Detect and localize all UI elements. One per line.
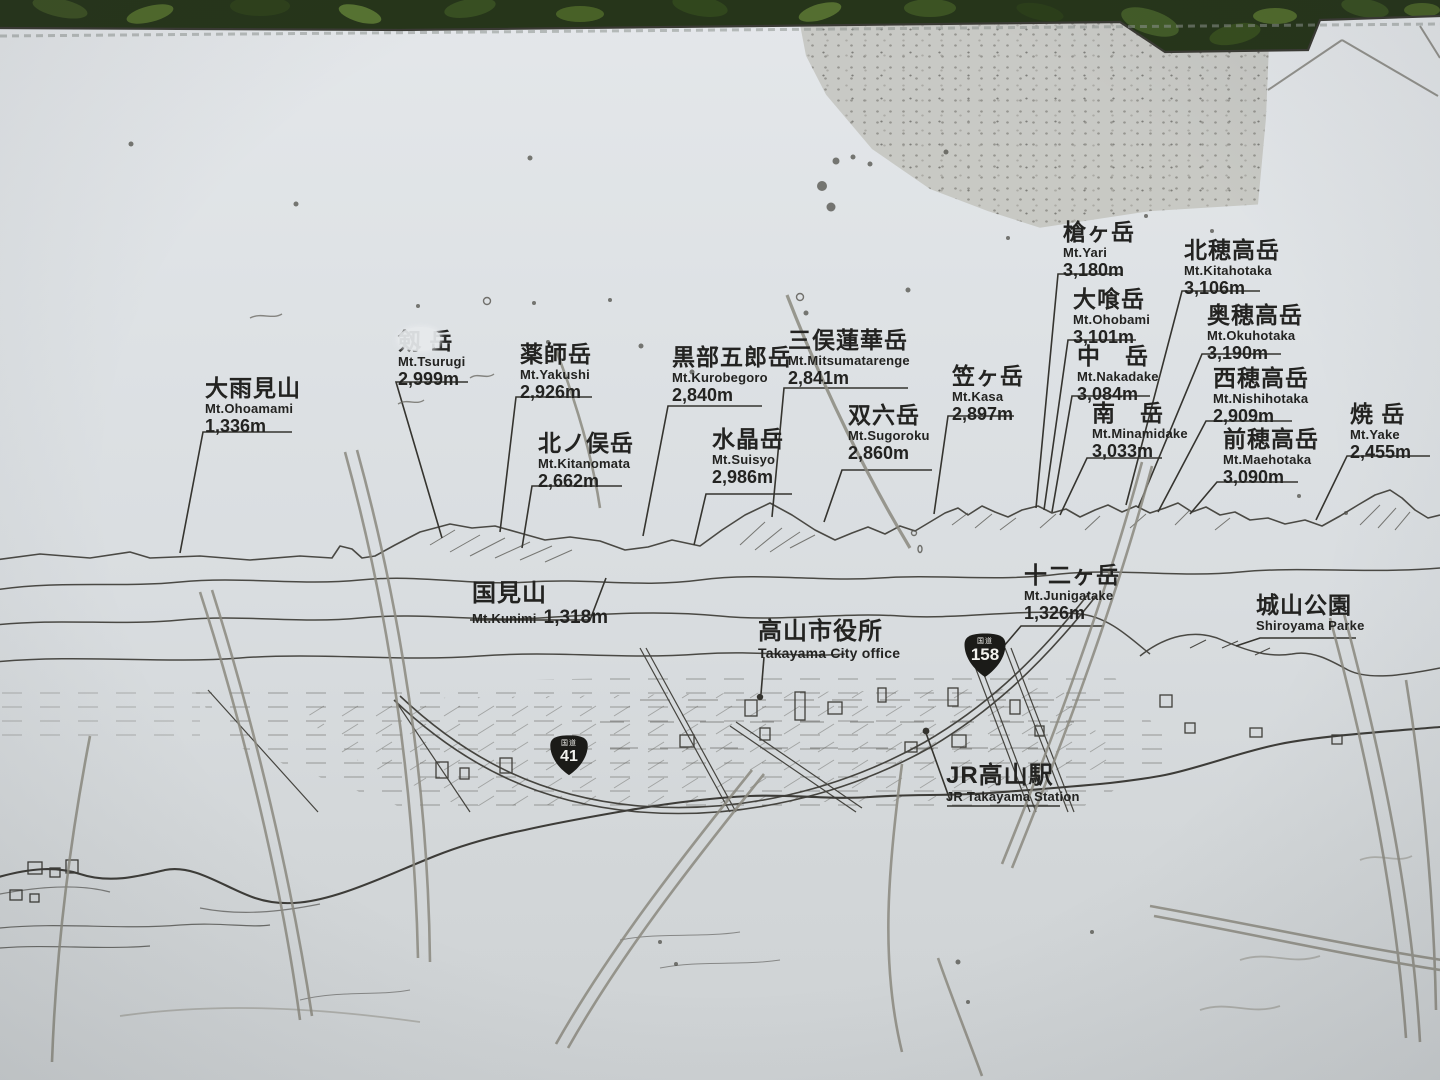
landmark-elevation: 1,326m (1024, 604, 1120, 624)
peak-kanji: 笠ヶ岳 (952, 365, 1024, 389)
peak-kanji: 大雨見山 (205, 377, 301, 401)
peak-kanji: 大喰岳 (1073, 288, 1150, 312)
peak-romaji: Mt.Kasa (952, 390, 1024, 404)
peak-kanji: 北穂高岳 (1184, 239, 1280, 263)
landmark-kanji: 国見山 (472, 582, 608, 607)
landmark-romaji: Mt.Junigatake (1024, 589, 1120, 603)
peak-kanji: 南 岳 (1092, 402, 1188, 426)
peak-kanji: 黒部五郎岳 (672, 346, 792, 370)
route-number: 158 (962, 646, 1008, 664)
peak-kanji: 前穂高岳 (1223, 428, 1319, 452)
peak-romaji: Mt.Minamidake (1092, 427, 1188, 441)
peak-elevation: 2,662m (538, 472, 634, 492)
landmark-kanji: 高山市役所 (758, 620, 900, 645)
peak-romaji: Mt.Yakushi (520, 368, 592, 382)
peak-label-minamidake: 南 岳 Mt.Minamidake 3,033m (1092, 402, 1188, 462)
route-number: 41 (548, 748, 590, 766)
landmark-kanji: JR高山駅 (946, 764, 1080, 789)
route-caption: 国道 (548, 734, 590, 748)
peak-kanji: 薬師岳 (520, 343, 592, 367)
peak-romaji: Mt.Tsurugi (398, 355, 465, 369)
peak-elevation: 2,860m (848, 444, 930, 464)
landmark-label-city-office: 高山市役所 Takayama City office (758, 620, 900, 661)
peak-romaji: Mt.Nakadake (1077, 370, 1159, 384)
peak-kanji: 西穂高岳 (1213, 367, 1309, 391)
alps-skyline (0, 490, 1440, 560)
landmark-romaji: Mt.Kunimi (472, 612, 537, 626)
peak-kanji: 槍ヶ岳 (1063, 221, 1135, 245)
peak-elevation: 3,033m (1092, 442, 1188, 462)
landmark-romaji: JR Takayama Station (946, 790, 1080, 804)
peak-elevation: 2,897m (952, 405, 1024, 425)
peak-label-yake: 焼 岳 Mt.Yake 2,455m (1350, 403, 1411, 463)
peak-romaji: Mt.Ohobami (1073, 313, 1150, 327)
peak-elevation: 3,090m (1223, 468, 1319, 488)
peak-label-yari: 槍ヶ岳 Mt.Yari 3,180m (1063, 221, 1135, 281)
peak-elevation: 2,999m (398, 370, 465, 390)
peak-elevation: 3,180m (1063, 261, 1135, 281)
landmark-label-kunimi: 国見山 Mt.Kunimi 1,318m (472, 582, 608, 629)
panorama-line-art (0, 0, 1440, 1080)
peak-label-mitsumatarenge: 三俣蓮華岳 Mt.Mitsumatarenge 2,841m (788, 329, 910, 389)
peak-label-okuhotaka: 奥穂高岳 Mt.Okuhotaka 3,190m (1207, 304, 1303, 364)
panorama-sign-photo: 大雨見山 Mt.Ohoamami 1,336m 剱 岳 Mt.Tsurugi 2… (0, 0, 1440, 1080)
peak-label-ohoamami: 大雨見山 Mt.Ohoamami 1,336m (205, 377, 301, 437)
peak-kanji: 中 岳 (1077, 345, 1159, 369)
peak-elevation: 2,840m (672, 386, 792, 406)
peak-kanji: 水晶岳 (712, 428, 784, 452)
peak-romaji: Mt.Sugoroku (848, 429, 930, 443)
peak-romaji: Mt.Yake (1350, 428, 1411, 442)
peak-romaji: Mt.Ohoamami (205, 402, 301, 416)
peak-label-kitahotaka: 北穂高岳 Mt.Kitahotaka 3,106m (1184, 239, 1280, 299)
peak-kanji: 焼 岳 (1350, 403, 1411, 427)
landmark-label-jr-station: JR高山駅 JR Takayama Station (946, 764, 1080, 804)
landmark-kanji: 十二ヶ岳 (1024, 564, 1120, 588)
ridge-hatching (430, 505, 1410, 562)
peak-romaji: Mt.Yari (1063, 246, 1135, 260)
peak-romaji: Mt.Maehotaka (1223, 453, 1319, 467)
city-map (0, 592, 1342, 814)
peak-romaji: Mt.Mitsumatarenge (788, 354, 910, 368)
landmark-label-shiroyama-park: 城山公園 Shiroyama Parke (1256, 594, 1365, 633)
peak-label-maehotaka: 前穂高岳 Mt.Maehotaka 3,090m (1223, 428, 1319, 488)
peak-romaji: Mt.Suisyo (712, 453, 784, 467)
middle-ridges (0, 568, 1440, 676)
peak-label-nakadake: 中 岳 Mt.Nakadake 3,084m (1077, 345, 1159, 405)
route-158-shield: 国道 158 (962, 632, 1008, 678)
peak-kanji: 北ノ俣岳 (538, 432, 634, 456)
peak-elevation: 3,106m (1184, 279, 1280, 299)
peak-elevation: 2,926m (520, 383, 592, 403)
peak-label-nishihotaka: 西穂高岳 Mt.Nishihotaka 2,909m (1213, 367, 1309, 427)
peak-label-kurobegoro: 黒部五郎岳 Mt.Kurobegoro 2,840m (672, 346, 792, 406)
paint-chip-blemish (398, 327, 440, 351)
peak-romaji: Mt.Kitahotaka (1184, 264, 1280, 278)
peak-romaji: Mt.Kurobegoro (672, 371, 792, 385)
peak-elevation: 1,336m (205, 417, 301, 437)
peak-kanji: 双六岳 (848, 404, 930, 428)
peak-elevation: 2,986m (712, 468, 784, 488)
peak-label-kasa: 笠ヶ岳 Mt.Kasa 2,897m (952, 365, 1024, 425)
peak-elevation: 2,841m (788, 369, 910, 389)
peak-elevation: 3,190m (1207, 344, 1303, 364)
peak-romaji: Mt.Okuhotaka (1207, 329, 1303, 343)
peak-label-ohobami: 大喰岳 Mt.Ohobami 3,101m (1073, 288, 1150, 348)
peak-romaji: Mt.Nishihotaka (1213, 392, 1309, 406)
route-caption: 国道 (962, 632, 1008, 646)
route-41-shield: 国道 41 (548, 734, 590, 776)
peak-label-yakushi: 薬師岳 Mt.Yakushi 2,926m (520, 343, 592, 403)
peak-elevation: 2,455m (1350, 443, 1411, 463)
peak-kanji: 奥穂高岳 (1207, 304, 1303, 328)
landmark-elevation: 1,318m (544, 608, 608, 629)
foliage-strip (0, 0, 1440, 52)
peak-label-suisyo: 水晶岳 Mt.Suisyo 2,986m (712, 428, 784, 488)
landmark-romaji: Takayama City office (758, 646, 900, 661)
scratches (52, 26, 1440, 1076)
landmark-label-junigatake: 十二ヶ岳 Mt.Junigatake 1,326m (1024, 564, 1120, 624)
peak-elevation: 2,909m (1213, 407, 1309, 427)
peak-romaji: Mt.Kitanomata (538, 457, 634, 471)
landmark-romaji: Shiroyama Parke (1256, 619, 1365, 633)
peak-kanji: 三俣蓮華岳 (788, 329, 910, 353)
peak-label-kitanomata: 北ノ俣岳 Mt.Kitanomata 2,662m (538, 432, 634, 492)
landmark-kanji: 城山公園 (1256, 594, 1365, 618)
peak-label-sugoroku: 双六岳 Mt.Sugoroku 2,860m (848, 404, 930, 464)
